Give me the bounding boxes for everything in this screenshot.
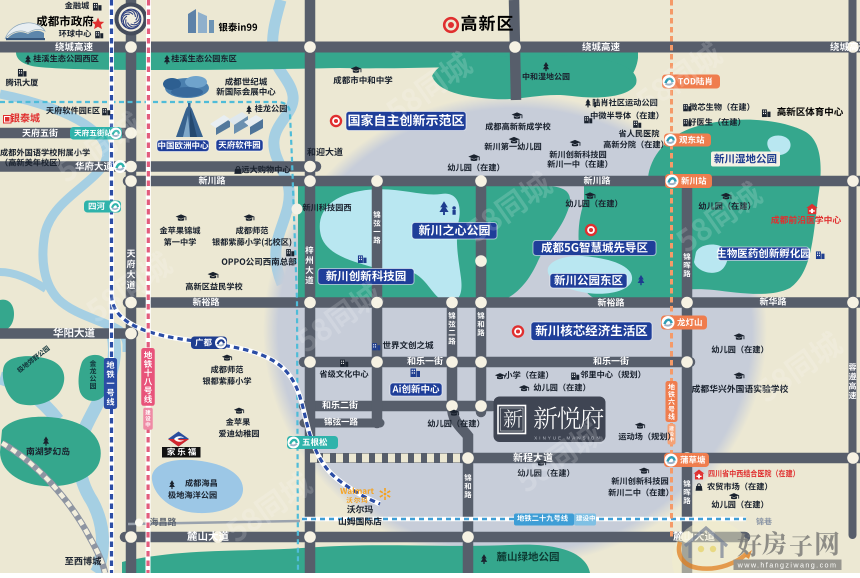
svg-text:www.hfangziwang.com: www.hfangziwang.com bbox=[737, 561, 838, 570]
